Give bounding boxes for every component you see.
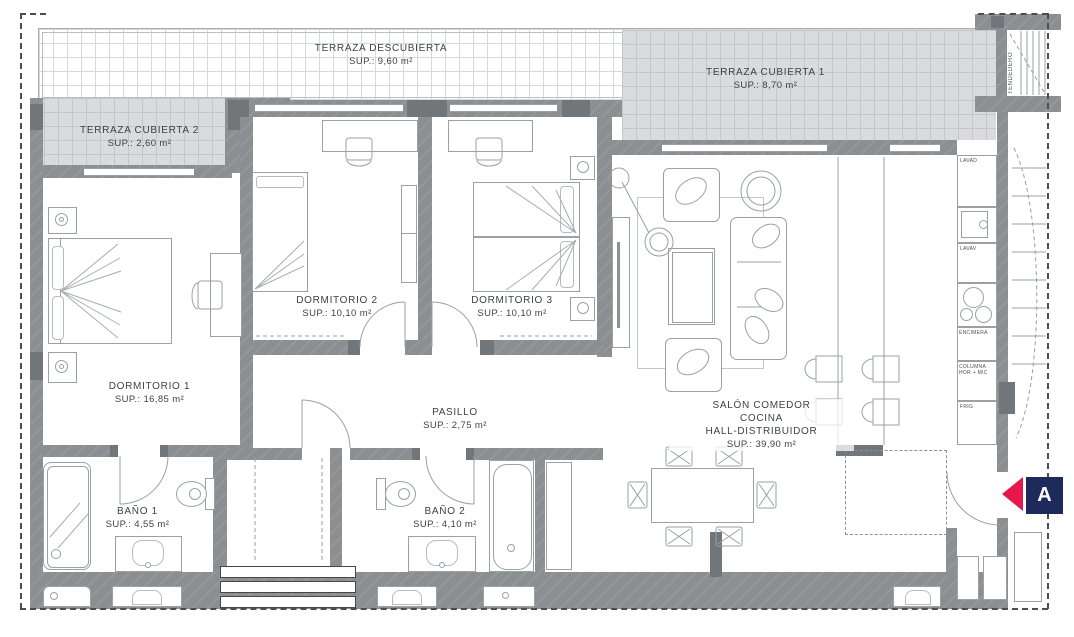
hob-burner-icon bbox=[963, 287, 984, 308]
room-name: SALÓN COMEDOR bbox=[669, 399, 854, 412]
wall-pillar bbox=[466, 448, 474, 460]
hall-zone-dashed bbox=[845, 450, 947, 535]
wall-pasillo-south bbox=[227, 448, 302, 460]
wall-entry-west bbox=[946, 528, 957, 576]
dining-chair bbox=[628, 482, 647, 508]
bar-stool bbox=[805, 356, 842, 382]
room-name: TERRAZA CUBIERTA 2 bbox=[52, 124, 227, 137]
toilet-bowl-inner bbox=[189, 488, 201, 500]
pillow bbox=[52, 246, 64, 290]
shelf-divider bbox=[401, 233, 417, 234]
label-pasillo: PASILLO SUP.: 2,75 m² bbox=[395, 406, 515, 432]
label-salon: SALÓN COMEDOR COCINA HALL-DISTRIBUIDOR S… bbox=[669, 399, 854, 451]
stair-sweep-dashed bbox=[1014, 148, 1037, 438]
desk bbox=[322, 120, 418, 152]
room-name: TERRAZA DESCUBIERTA bbox=[256, 42, 506, 55]
tendedero-lines bbox=[1021, 31, 1045, 95]
sink-basin bbox=[905, 590, 931, 605]
label-dormitorio-1: DORMITORIO 1 SUP.: 16,85 m² bbox=[62, 380, 237, 406]
room-area: SUP.: 2,60 m² bbox=[52, 137, 227, 150]
stair-step bbox=[220, 596, 356, 608]
toilet-bowl-inner bbox=[398, 488, 410, 500]
lamp-icon bbox=[577, 161, 589, 173]
wall-pillar bbox=[412, 448, 420, 460]
fixture-cut bbox=[483, 586, 535, 607]
closet-door-arc bbox=[302, 400, 350, 448]
room-area: SUP.: 2,75 m² bbox=[395, 419, 515, 432]
wall-east bbox=[997, 112, 1008, 472]
stair-step bbox=[220, 566, 356, 578]
section-marker-label: A bbox=[1037, 484, 1051, 507]
boundary-bottom bbox=[20, 608, 1048, 610]
window-dorm1 bbox=[84, 168, 194, 176]
tendedero-label: TENDEDERO bbox=[1008, 34, 1020, 94]
wall-pillar bbox=[348, 340, 360, 355]
entry-closet bbox=[983, 556, 1007, 600]
wall-bano1-east bbox=[213, 448, 227, 572]
floor-plan: TENDEDERO LAVAD LA bbox=[0, 0, 1074, 637]
kitchen-label-columna: COLUMNA HOR + MIC bbox=[959, 364, 988, 376]
kitchen-label-lavad: LAVAD bbox=[960, 158, 977, 164]
room-name: BAÑO 1 bbox=[60, 505, 215, 518]
room-name: PASILLO bbox=[395, 406, 515, 419]
wall-pillar bbox=[562, 100, 590, 117]
window-dorm2 bbox=[255, 104, 403, 112]
room-area: SUP.: 39,90 m² bbox=[669, 438, 854, 451]
wall-pillar bbox=[710, 532, 722, 577]
bano1-door-arc bbox=[120, 456, 168, 504]
room-area: SUP.: 4,55 m² bbox=[60, 518, 215, 531]
wall-divider-dorm2-dorm3 bbox=[418, 117, 432, 355]
label-bano-2: BAÑO 2 SUP.: 4,10 m² bbox=[370, 505, 520, 531]
stair-closet bbox=[1014, 532, 1042, 602]
wall-pillar bbox=[30, 104, 43, 130]
faucet-icon bbox=[979, 220, 988, 229]
wall-pillar bbox=[110, 445, 118, 457]
label-terraza-cubierta-2: TERRAZA CUBIERTA 2 SUP.: 2,60 m² bbox=[52, 124, 227, 150]
room-name: HALL-DISTRIBUIDOR bbox=[669, 425, 854, 438]
room-area: SUP.: 4,10 m² bbox=[370, 518, 520, 531]
room-area: SUP.: 16,85 m² bbox=[62, 393, 237, 406]
desk bbox=[448, 120, 533, 152]
hall-cabinet bbox=[546, 462, 572, 570]
room-name: DORMITORIO 2 bbox=[262, 294, 412, 307]
boundary-top-left bbox=[20, 13, 46, 15]
room-name: BAÑO 2 bbox=[370, 505, 520, 518]
room-name: DORMITORIO 3 bbox=[437, 294, 587, 307]
label-dormitorio-2: DORMITORIO 2 SUP.: 10,10 m² bbox=[262, 294, 412, 320]
wall-doorjamb bbox=[405, 340, 432, 355]
wall-pillar bbox=[480, 340, 494, 355]
faucet-icon bbox=[439, 562, 445, 568]
entry-closet bbox=[957, 556, 979, 600]
label-terraza-descubierta: TERRAZA DESCUBIERTA SUP.: 9,60 m² bbox=[256, 42, 506, 68]
wall-pasillo-south bbox=[350, 448, 420, 460]
bathtub-drain-icon bbox=[502, 592, 509, 599]
wall-pillar bbox=[407, 100, 447, 117]
wall-divider-dorm3-salon bbox=[597, 117, 612, 357]
label-bano-1: BAÑO 1 SUP.: 4,55 m² bbox=[60, 505, 215, 531]
room-name: TERRAZA CUBIERTA 1 bbox=[653, 66, 878, 79]
pillow bbox=[560, 241, 574, 288]
tv-unit bbox=[612, 217, 630, 348]
desk bbox=[210, 253, 242, 337]
wardrobe-shelf bbox=[401, 185, 417, 283]
bathtub-drain-icon bbox=[507, 544, 515, 552]
wall-closet-east bbox=[330, 448, 342, 572]
wall-pillar bbox=[999, 382, 1015, 414]
label-terraza-cubierta-1: TERRAZA CUBIERTA 1 SUP.: 8,70 m² bbox=[653, 66, 878, 92]
wall-pillar bbox=[160, 445, 168, 457]
kitchen-label-columna-line2: HOR + MIC bbox=[959, 370, 988, 376]
dining-chair bbox=[757, 482, 776, 508]
hob-burner-icon bbox=[975, 306, 992, 323]
entry-door-arc bbox=[947, 472, 1000, 525]
window-dorm3 bbox=[450, 104, 557, 112]
stair-step bbox=[220, 581, 356, 593]
bar-stool bbox=[862, 399, 899, 425]
pillow bbox=[560, 186, 574, 233]
kitchen-label-lavav: LAVAV bbox=[960, 246, 977, 252]
hob-burner-icon bbox=[960, 308, 973, 321]
kitchen-label-frig: FRIG bbox=[960, 404, 973, 410]
sink-basin bbox=[392, 590, 422, 605]
room-name: COCINA bbox=[669, 412, 854, 425]
shower-drain-icon bbox=[51, 549, 61, 559]
coffee-table-inner bbox=[672, 252, 713, 323]
dining-table bbox=[651, 468, 754, 523]
shower-drain-icon bbox=[50, 592, 58, 600]
wall-pillar bbox=[991, 16, 1004, 28]
sink-basin bbox=[132, 590, 162, 605]
boundary-right bbox=[1047, 13, 1049, 609]
room-area: SUP.: 8,70 m² bbox=[653, 79, 878, 92]
pillow bbox=[256, 176, 304, 188]
room-name: DORMITORIO 1 bbox=[62, 380, 237, 393]
floor-lamp-icon bbox=[609, 168, 629, 188]
wall-dorm1-south bbox=[42, 445, 118, 457]
armchair bbox=[663, 168, 720, 222]
window-salon-2 bbox=[890, 144, 940, 152]
room-area: SUP.: 9,60 m² bbox=[256, 55, 506, 68]
stairwell-steps bbox=[1012, 168, 1046, 364]
tv bbox=[617, 242, 620, 328]
section-marker-badge: A bbox=[1026, 477, 1063, 514]
faucet-icon bbox=[145, 562, 151, 568]
lamp-icon bbox=[59, 217, 64, 222]
lamp-icon bbox=[59, 364, 64, 369]
bano2-door-arc bbox=[426, 456, 474, 504]
section-marker-arrow-icon bbox=[1002, 477, 1023, 511]
sofa bbox=[730, 217, 787, 360]
wall-dorm3-south bbox=[494, 340, 603, 355]
kitchen-label-encimera: ENCIMERA bbox=[959, 330, 988, 336]
window-salon-1 bbox=[662, 144, 827, 152]
boundary-top-right bbox=[978, 13, 1048, 15]
armchair bbox=[665, 338, 722, 392]
room-area: SUP.: 10,10 m² bbox=[262, 307, 412, 320]
boundary-left bbox=[20, 13, 22, 609]
pillow bbox=[52, 296, 64, 340]
bed-single bbox=[252, 172, 308, 292]
room-area: SUP.: 10,10 m² bbox=[437, 307, 587, 320]
dining-chair bbox=[666, 527, 692, 546]
wall-pillar bbox=[30, 352, 43, 380]
wall-dorm2-south bbox=[253, 340, 348, 355]
bed-double bbox=[48, 238, 172, 344]
label-dormitorio-3: DORMITORIO 3 SUP.: 10,10 m² bbox=[437, 294, 587, 320]
bar-stool bbox=[862, 356, 899, 382]
wall-bano2-east bbox=[535, 448, 545, 572]
